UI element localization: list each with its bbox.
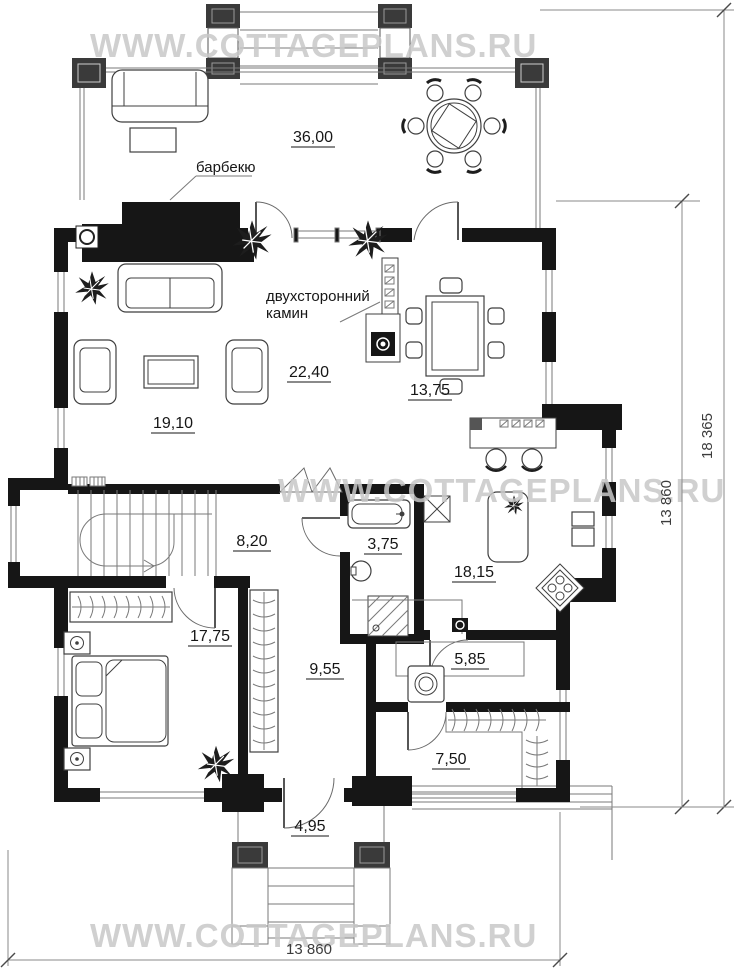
bedroom (64, 592, 234, 782)
label-laundry: 5,85 (451, 651, 489, 669)
svg-text:17,75: 17,75 (190, 628, 230, 645)
svg-text:3,75: 3,75 (367, 536, 398, 553)
kitchen-cabinet (572, 528, 594, 546)
dim-right-outer: 18 365 (699, 413, 716, 459)
door-bedroom (174, 588, 215, 628)
svg-text:13,75: 13,75 (410, 382, 450, 399)
sink (351, 561, 371, 581)
barbecue-block (122, 202, 240, 262)
floor-plan-drawing: WWW.COTTAGEPLANS.RU WWW.COTTAGEPLANS.RU … (0, 0, 738, 979)
label-hallway: 9,55 (306, 661, 344, 679)
svg-text:8,20: 8,20 (236, 533, 267, 550)
kitchen-fixture (452, 618, 468, 632)
floor-plan-page: WWW.COTTAGEPLANS.RU WWW.COTTAGEPLANS.RU … (0, 0, 738, 979)
svg-text:5,85: 5,85 (454, 651, 485, 668)
pillow (76, 704, 102, 738)
shower (368, 596, 408, 636)
svg-text:18,15: 18,15 (454, 564, 494, 581)
porch-columns (232, 842, 390, 868)
label-bedroom: 17,75 (188, 628, 232, 646)
blanket (106, 660, 166, 742)
coffee-table (144, 356, 198, 388)
barbecue-unit (76, 226, 98, 248)
label-dining: 13,75 (408, 382, 452, 400)
wardrobe-bedroom (70, 592, 172, 622)
door-living-terrace (256, 202, 292, 240)
bed (72, 656, 168, 746)
stair-walkline (80, 514, 212, 566)
washing-machine (408, 666, 444, 702)
svg-text:36,00: 36,00 (293, 129, 333, 146)
label-porch: 4,95 (291, 818, 329, 836)
bar-stool (486, 449, 506, 469)
svg-text:9,55: 9,55 (309, 661, 340, 678)
svg-text:19,10: 19,10 (153, 415, 193, 432)
wardrobe-room (446, 709, 548, 788)
walkway (412, 786, 612, 860)
label-terrace: 36,00 (291, 129, 335, 147)
barbecue-leader (170, 176, 196, 200)
sofa (118, 264, 222, 312)
label-living: 19,10 (151, 415, 195, 433)
door-dining-terrace (414, 202, 458, 240)
pillow (76, 662, 102, 696)
dining-table (426, 296, 484, 376)
terrace-side-table (130, 128, 176, 152)
nightstand (64, 748, 90, 770)
cooktop (536, 564, 584, 612)
fireplace-label-line1: двухсторонний (266, 288, 370, 305)
label-bathroom: 3,75 (364, 536, 402, 554)
label-kitchen: 18,15 (452, 564, 496, 582)
plant-icon (75, 271, 109, 305)
barbecue-label: барбекю (196, 159, 256, 176)
label-wardrobe-room: 7,50 (432, 751, 470, 769)
armchair-right (226, 340, 268, 404)
svg-text:4,95: 4,95 (294, 818, 325, 835)
watermark-top: WWW.COTTAGEPLANS.RU (90, 27, 537, 64)
bathroom (348, 496, 450, 636)
bar-stool (522, 449, 542, 469)
fireplace-label-line2: камин (266, 305, 308, 322)
kitchen-cabinet (572, 512, 594, 526)
terrace-sofa (112, 70, 208, 122)
hallway-closet (250, 590, 278, 752)
dim-bottom: 13 860 (286, 941, 332, 958)
dining-room (406, 278, 556, 471)
staircase (78, 490, 216, 576)
terrace-round-table (403, 80, 506, 173)
fireplace (366, 258, 400, 362)
label-fireplace-hall: 22,40 (287, 364, 331, 382)
door-wardrobe-room (408, 712, 446, 750)
nightstand (64, 632, 90, 654)
door-bathroom (302, 518, 340, 556)
svg-text:22,40: 22,40 (289, 364, 329, 381)
armchair-left (74, 340, 116, 404)
label-stair-hall: 8,20 (233, 533, 271, 551)
bar-counter (470, 418, 556, 471)
svg-text:7,50: 7,50 (435, 751, 466, 768)
dim-right-inner: 13 860 (658, 480, 675, 526)
